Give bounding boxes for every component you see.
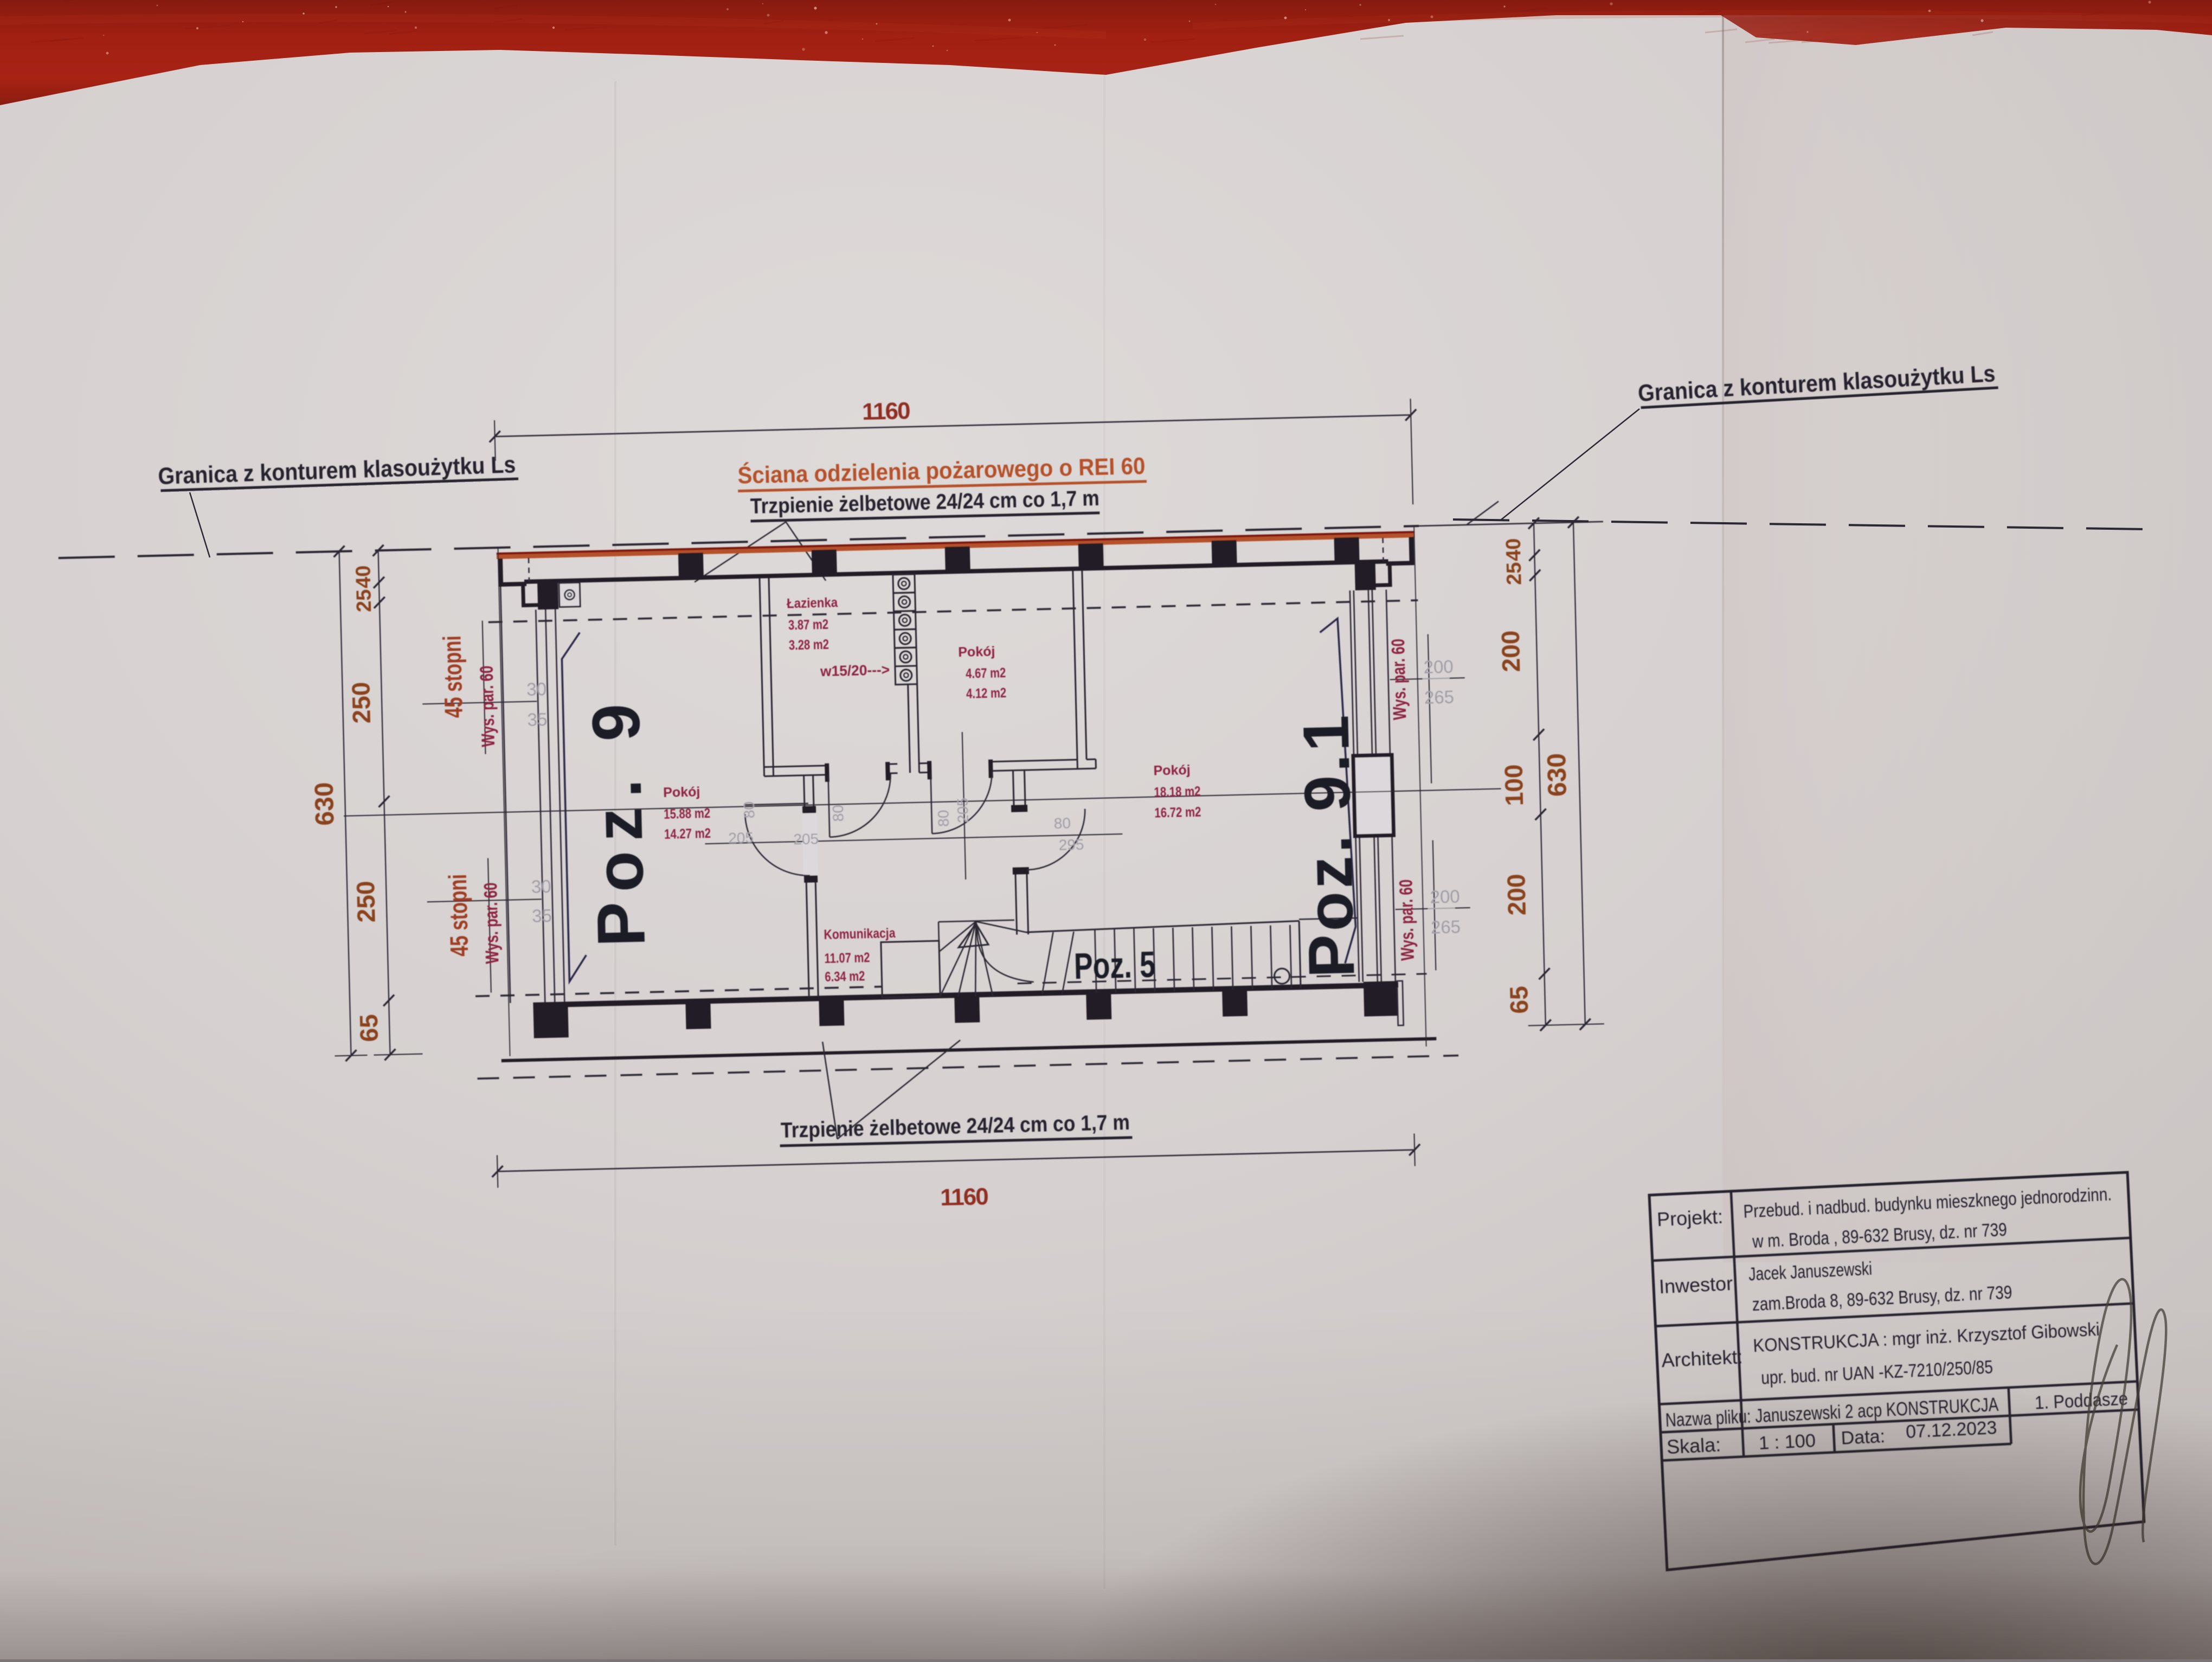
svg-text:Inwestor:: Inwestor: [1658, 1272, 1739, 1298]
svg-text:65: 65 [1504, 986, 1533, 1014]
svg-text:200: 200 [1423, 657, 1454, 677]
svg-text:6.34 m2: 6.34 m2 [825, 968, 865, 985]
svg-text:100: 100 [1499, 764, 1528, 806]
svg-text:3.28 m2: 3.28 m2 [789, 637, 829, 653]
svg-text:45 stopni: 45 stopni [443, 874, 474, 957]
svg-text:200: 200 [1496, 630, 1526, 672]
svg-text:Poz. 5: Poz. 5 [1073, 944, 1156, 987]
svg-text:14.27 m2: 14.27 m2 [664, 826, 711, 842]
svg-text:Wys. par. 60: Wys. par. 60 [480, 882, 503, 964]
svg-text:Pokój: Pokój [663, 784, 700, 800]
svg-text:Wys. par. 60: Wys. par. 60 [1388, 638, 1411, 720]
svg-text:65: 65 [355, 1014, 383, 1042]
svg-text:250: 250 [351, 881, 381, 923]
svg-text:Łazienka: Łazienka [787, 595, 839, 611]
svg-text:200: 200 [1502, 874, 1531, 916]
svg-text:205: 205 [954, 798, 972, 823]
svg-text:630: 630 [310, 782, 340, 826]
svg-text:Pokój: Pokój [958, 644, 995, 660]
svg-text:40: 40 [352, 565, 375, 588]
svg-text:80: 80 [1053, 814, 1071, 832]
svg-text:25: 25 [1503, 562, 1526, 585]
svg-text:3.87 m2: 3.87 m2 [788, 617, 829, 633]
svg-text:15.88 m2: 15.88 m2 [664, 806, 711, 822]
svg-text:265: 265 [1424, 687, 1455, 708]
svg-text:w15/20--->: w15/20---> [820, 662, 890, 679]
svg-text:630: 630 [1542, 753, 1572, 797]
svg-text:80: 80 [741, 801, 758, 819]
svg-text:265: 265 [1431, 916, 1461, 937]
svg-text:205: 205 [793, 830, 819, 848]
svg-text:295: 295 [1058, 836, 1084, 854]
svg-text:250: 250 [346, 682, 376, 724]
svg-text:1160: 1160 [940, 1183, 988, 1211]
svg-text:40: 40 [1502, 538, 1526, 561]
svg-text:30: 30 [526, 679, 547, 700]
svg-text:Projekt:: Projekt: [1656, 1205, 1724, 1231]
svg-text:35: 35 [527, 709, 548, 730]
svg-text:Komunikacja: Komunikacja [824, 926, 896, 942]
svg-text:Poz. 9: Poz. 9 [578, 703, 659, 947]
svg-text:80: 80 [829, 805, 847, 822]
svg-text:1160: 1160 [862, 397, 910, 425]
svg-text:45 stopni: 45 stopni [438, 635, 468, 718]
svg-text:205: 205 [728, 829, 754, 846]
svg-text:35: 35 [532, 906, 552, 926]
svg-text:18.18 m2: 18.18 m2 [1154, 784, 1201, 800]
svg-text:Wys. par. 60: Wys. par. 60 [1396, 879, 1418, 961]
svg-text:4.67 m2: 4.67 m2 [966, 665, 1006, 682]
svg-text:Wys. par. 60: Wys. par. 60 [477, 665, 499, 747]
svg-text:16.72 m2: 16.72 m2 [1154, 805, 1201, 821]
svg-text:Pokój: Pokój [1153, 762, 1191, 779]
svg-text:25: 25 [352, 589, 376, 612]
svg-text:4.12 m2: 4.12 m2 [966, 685, 1007, 702]
svg-text:200: 200 [1430, 886, 1460, 907]
svg-text:30: 30 [531, 876, 551, 897]
svg-text:80: 80 [935, 810, 952, 827]
svg-text:11.07 m2: 11.07 m2 [824, 950, 870, 966]
